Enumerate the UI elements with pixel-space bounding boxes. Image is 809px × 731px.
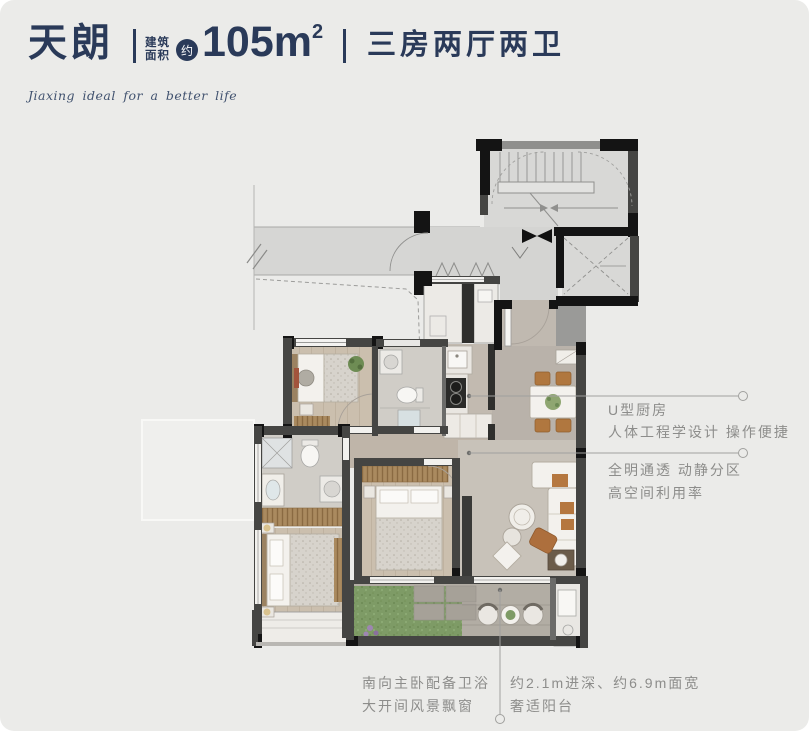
annotation-balcony-line2: 奢适阳台 (510, 699, 574, 713)
header-divider (343, 29, 346, 63)
annotation-balcony-line1: 约2.1m进深、约6.9m面宽 (510, 676, 700, 690)
layout-type: 三房两厅两卫 (367, 31, 565, 60)
master-bedroom-furniture (260, 523, 342, 617)
annotation-living-line1: 全明通透 动静分区 (608, 463, 742, 477)
annotation-master-line2: 大开间风景飘窗 (362, 699, 474, 713)
floorplan-card: 天朗 建筑 面积 约 105m2 三房两厅两卫 Jiaxing ideal fo… (0, 0, 809, 731)
approx-badge: 约 (176, 39, 198, 61)
header-divider (133, 29, 136, 63)
leader-endpoint-circle (739, 449, 748, 458)
plan-name: 天朗 (28, 24, 114, 63)
tagline: Jiaxing ideal for a better life (28, 88, 237, 103)
area-superscript: 2 (312, 21, 323, 43)
annotation-kitchen-line2: 人体工程学设计 操作便捷 (608, 425, 790, 439)
annotation-master-line1: 南向主卧配备卫浴 (362, 676, 490, 690)
annotation-living-line2: 高空间利用率 (608, 486, 704, 500)
floorplan-svg (0, 0, 809, 731)
leader-endpoint-circle (496, 715, 505, 724)
annotation-kitchen-line1: U型厨房 (608, 403, 668, 417)
leader-endpoint-circle (739, 392, 748, 401)
area-value: 105m2 (202, 21, 323, 64)
area-label: 建筑 面积 (145, 37, 170, 63)
neighbour-ghost (142, 420, 254, 520)
